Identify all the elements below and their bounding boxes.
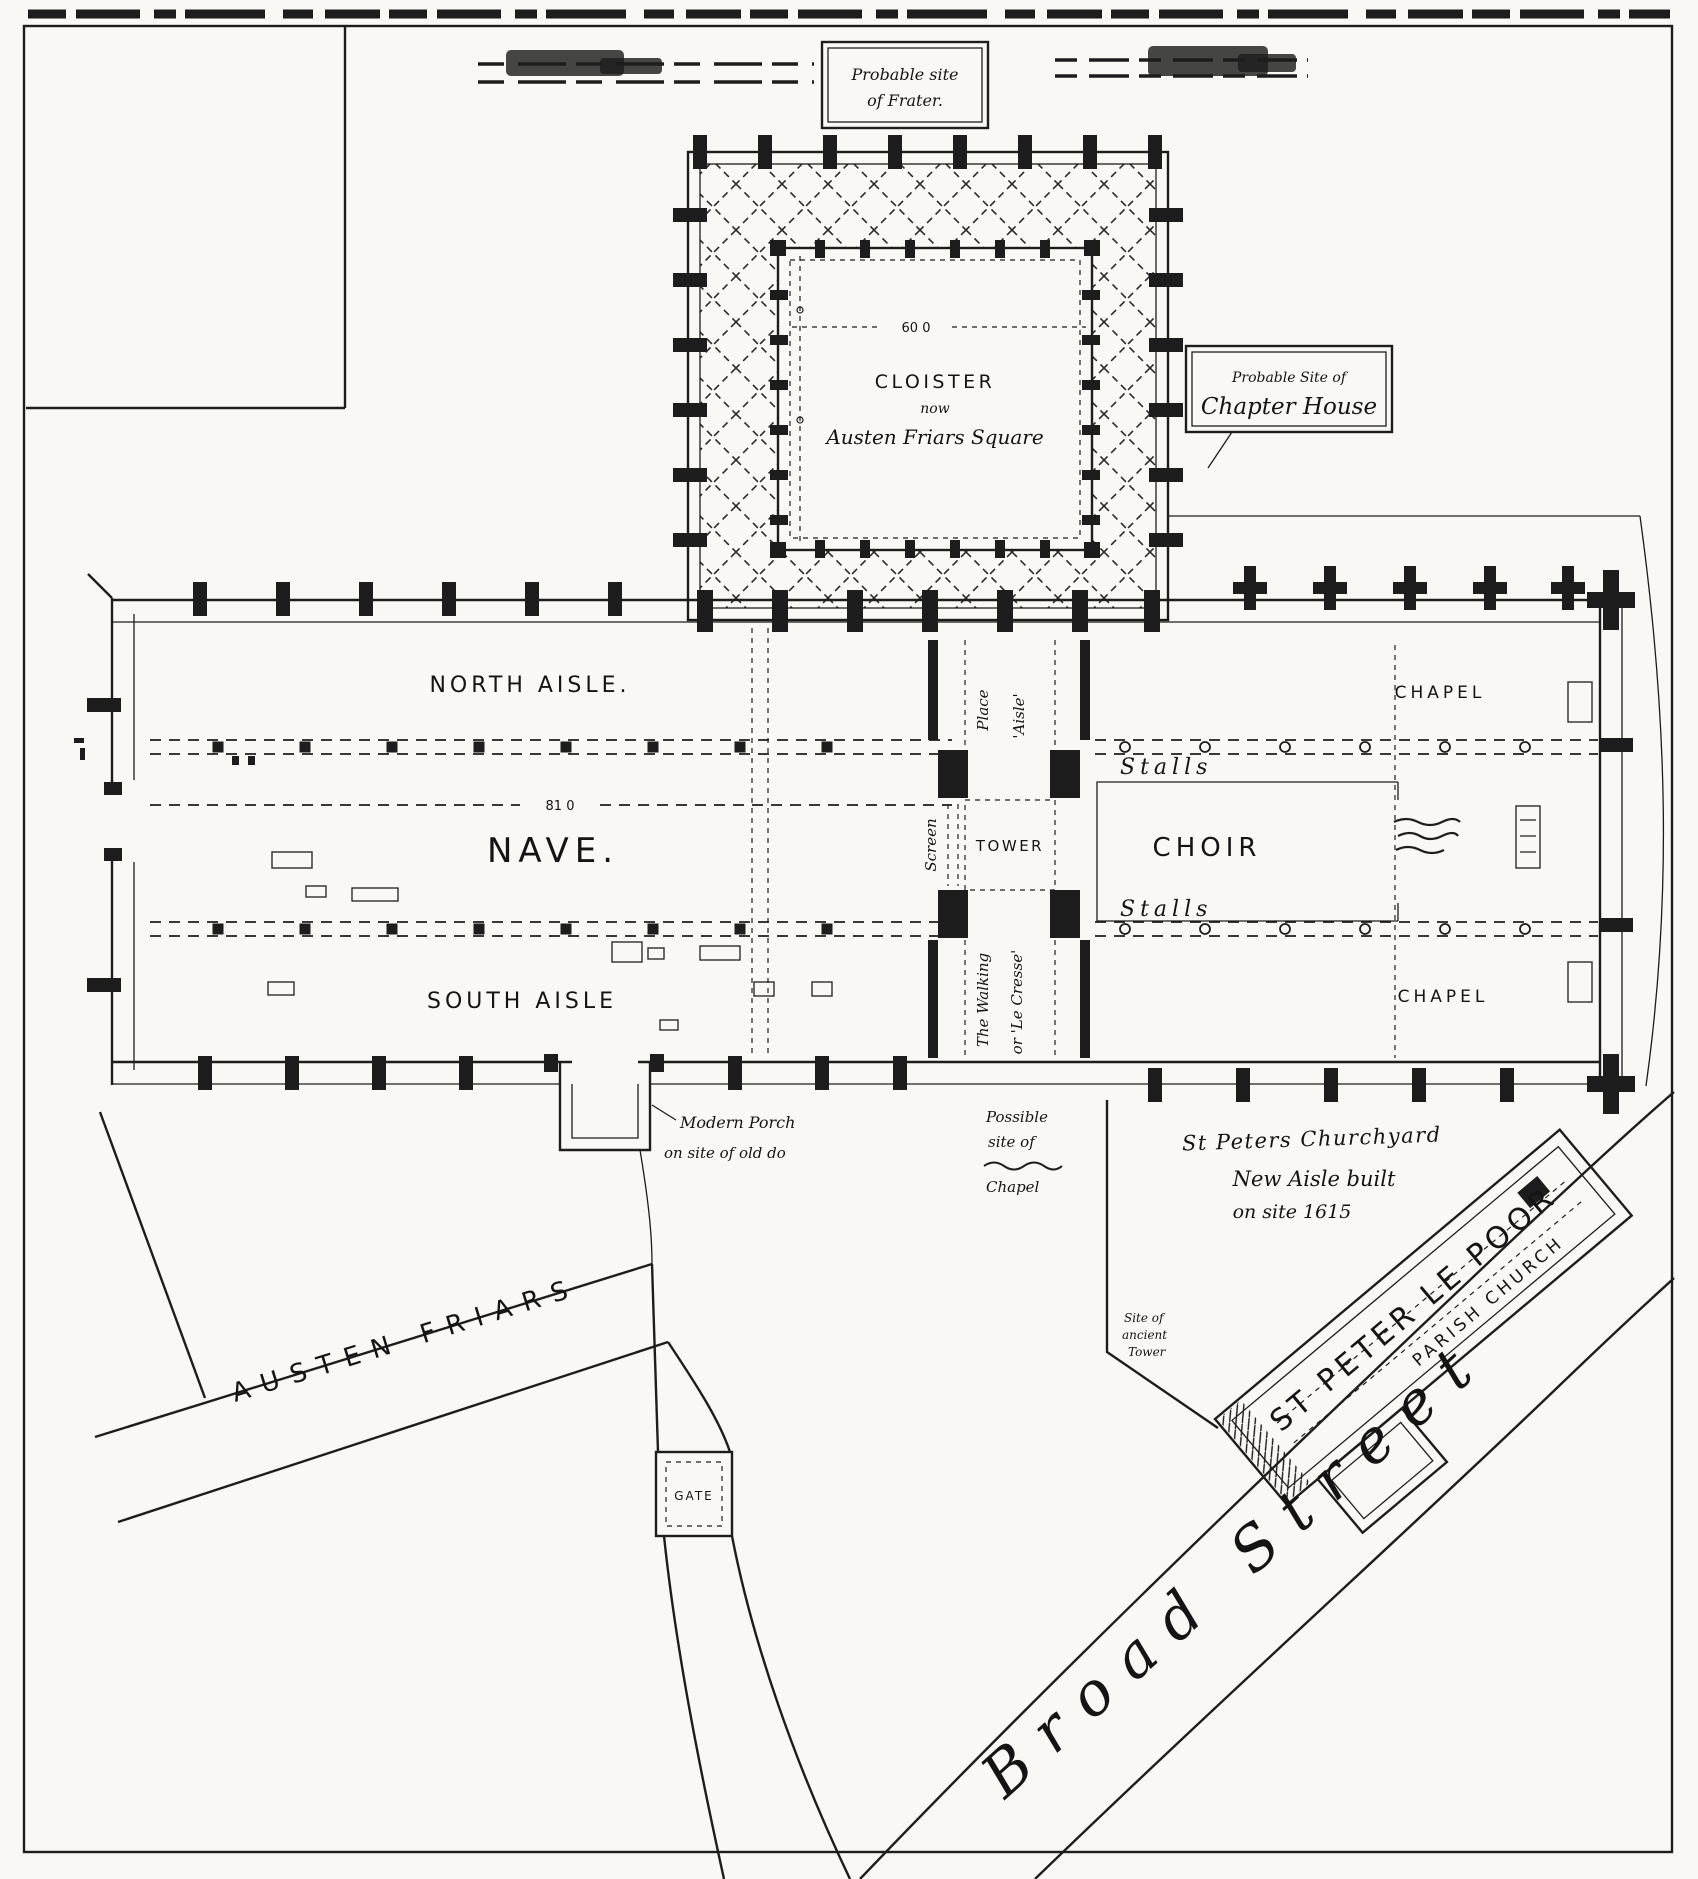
yard-inner-line [640,1150,652,1264]
west-front-mark [74,738,85,760]
cloister-label: CLOISTER [875,371,996,393]
cloister-plan: 60 0 CLOISTER now Austen Friars Square [673,135,1183,620]
chapel-north-label: CHAPEL [1395,683,1486,703]
possible-chapel-line1: Possible [985,1108,1048,1126]
ancient-tower-line1: Site of [1124,1311,1166,1325]
tower-plan: TOWER Screen Place 'Aisle' The Walking o… [922,640,1090,1058]
walking-label-line1: The Walking [974,953,992,1047]
choir-plan: Stalls Stalls CHOIR CHAPEL CHAPEL [1095,566,1635,1114]
frater-box-line1: Probable site [851,65,959,84]
illegible-tomb-note [1394,819,1460,853]
illegible-label-smudge [1238,54,1296,72]
screen-lines [948,804,958,886]
gate-passage-west-line [652,1264,658,1452]
possible-chapel-line2: site of [988,1133,1037,1151]
frater-box-line2: of Frater. [867,91,943,110]
gate: GATE [656,1452,732,1536]
nave-buttresses [87,582,1160,1090]
yard-boundary-line [100,1112,205,1398]
gate-passage-east-line [668,1342,730,1452]
modern-porch-label-line1: Modern Porch [679,1113,795,1132]
cloister-square-label: Austen Friars Square [824,425,1043,449]
ancient-tower-line2: ancient [1122,1328,1167,1342]
churchyard-label: St Peters Churchyard [1182,1122,1442,1155]
passage-to-street-east [732,1536,850,1879]
new-aisle-label-line1: New Aisle built [1232,1167,1396,1191]
nave-dimension-label: 81 0 [546,799,575,814]
broad-street-label: Broad Street [967,1321,1501,1812]
choir-label: CHOIR [1153,833,1262,863]
gate-label: GATE [674,1489,714,1503]
nave-label: NAVE. [487,831,619,871]
south-aisle-label: SOUTH AISLE [427,989,617,1014]
top-left-boundary-lines [26,27,345,408]
chapter-house-leader-line [1208,432,1232,468]
porch-leader-line [652,1105,676,1120]
illegible-script-mark [984,1163,1062,1170]
austen-friars-street: AUSTEN FRIARS GATE [95,1112,850,1879]
modern-porch-label-line2: on site of old do [664,1144,786,1162]
frater-site-box: Probable site of Frater. [822,42,988,128]
street-lower-edge [118,1342,668,1522]
stalls-north-label: Stalls [1120,755,1212,780]
new-aisle-label-line2: on site 1615 [1233,1201,1352,1223]
chapter-house-line2: Chapter House [1201,394,1377,420]
place-label: Place [974,689,992,731]
ancient-tower-line3: Tower [1128,1345,1167,1359]
chapter-house-site-box: Probable Site of Chapter House [1186,346,1392,468]
plan-frame [24,14,1672,1852]
screen-label: Screen [922,818,940,871]
passage-to-street-west [664,1536,724,1879]
cloister-now-label: now [920,401,949,417]
possible-chapel-line3: Chapel [986,1178,1040,1196]
stalls-south-label: Stalls [1120,897,1212,922]
plan-drawing: Probable site of Frater. Probable Site o… [0,0,1698,1879]
east-boundary-curve [1640,516,1663,1086]
south-porch [560,1062,650,1150]
scanned-priory-plan: Probable site of Frater. Probable Site o… [0,0,1698,1879]
chapter-house-line1: Probable Site of [1231,370,1349,386]
chapel-south-label: CHAPEL [1398,987,1489,1007]
cloister-garth-piers [770,240,1100,558]
aisle-label: 'Aisle' [1010,693,1028,738]
walking-label-line2: or 'Le Cresse' [1008,950,1026,1055]
cloister-dimension-label: 60 0 [902,321,931,336]
illegible-label-smudge [600,58,662,74]
nave-plan: NORTH AISLE. NAVE. 81 0 SOUTH AISLE [74,574,1600,1150]
tower-label: TOWER [975,837,1044,855]
north-aisle-label: NORTH AISLE. [429,673,630,698]
